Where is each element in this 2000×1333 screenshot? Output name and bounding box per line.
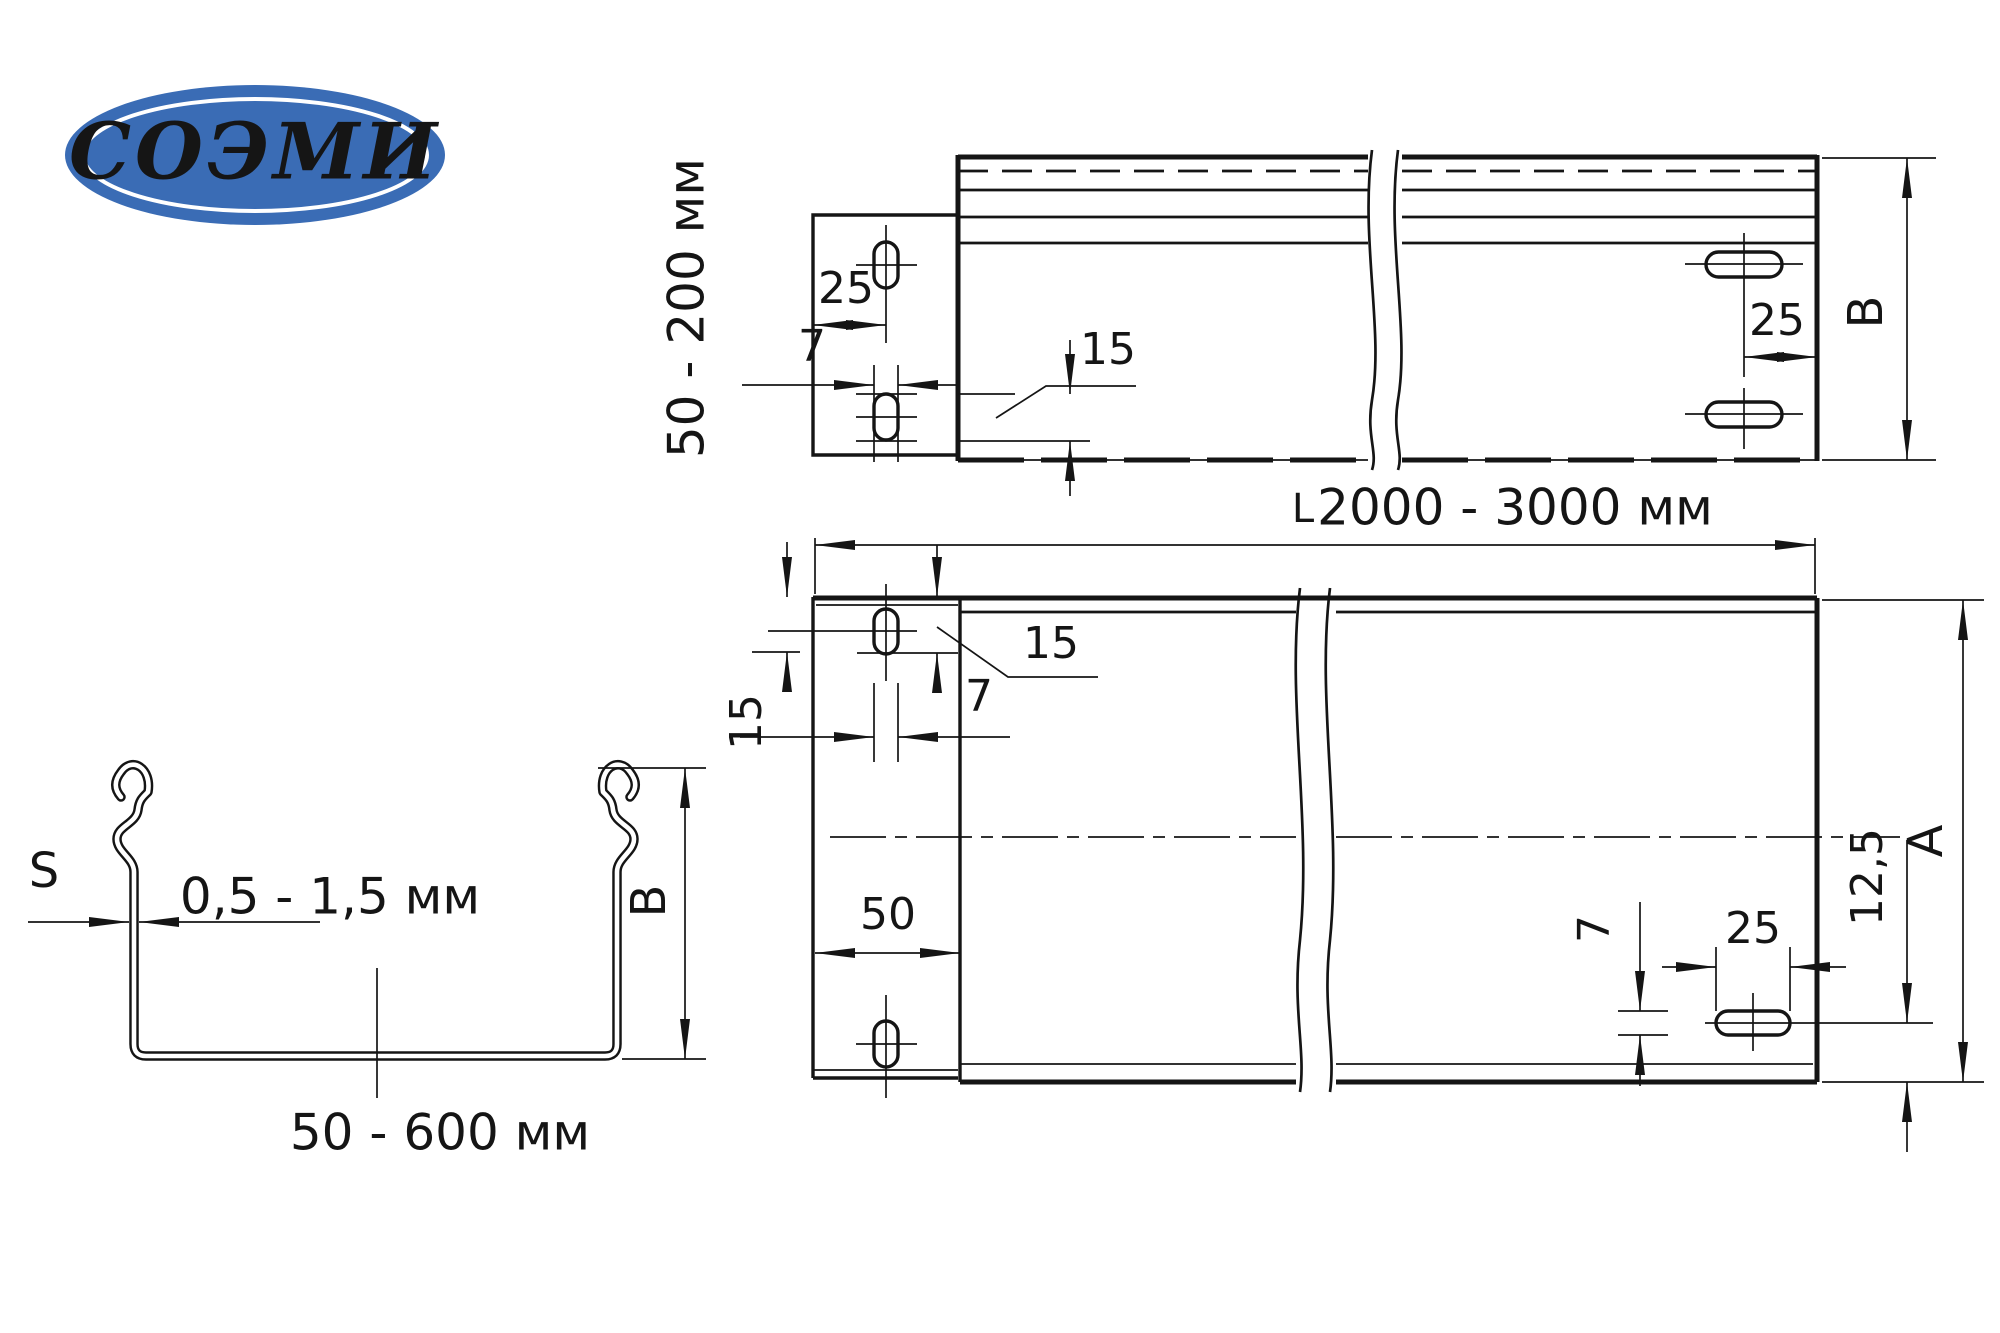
dim-length-symbol: L: [1292, 486, 1315, 532]
dim-width-A: A: [1898, 824, 1954, 857]
dim-edge-to-slot: 15: [721, 694, 772, 750]
length-dimension: L 2000 - 3000 мм: [815, 479, 1815, 595]
break-line: [1326, 588, 1334, 1092]
dim-hole-offset-right: 25: [1749, 295, 1805, 346]
dim-slot-width: 7: [798, 321, 826, 372]
dim-hole-offset-left: 25: [818, 263, 874, 314]
dim-center-offset: 12,5: [1842, 828, 1893, 926]
side-view-height-range-label: 50 - 200 мм: [658, 158, 716, 458]
cable-tray-drawing: СОЭМИ 50 - 200 мм: [0, 0, 2000, 1333]
dim-hole-offset: 25: [1725, 903, 1781, 954]
thickness-range-label: 0,5 - 1,5 мм: [180, 868, 480, 926]
thickness-symbol: S: [29, 843, 59, 899]
break-line: [1395, 150, 1402, 470]
side-view: 50 - 200 мм 25: [658, 150, 1937, 496]
dim-length-range: 2000 - 3000 мм: [1317, 479, 1713, 537]
dim-tab-width: 50: [860, 889, 916, 940]
dim-height-B: B: [621, 885, 677, 918]
break-line: [1369, 150, 1376, 470]
dim-slot-width-right: 7: [1569, 915, 1620, 943]
width-range-label: 50 - 600 мм: [290, 1104, 590, 1162]
dim-height-B: B: [1838, 296, 1894, 329]
dim-slot-width-left: 7: [965, 671, 993, 722]
dim-slot-length: 15: [1080, 324, 1136, 375]
plan-view: 15 15 7 50 25 7 12: [721, 542, 1984, 1152]
leader-line: [996, 386, 1136, 418]
cross-section-view: S 0,5 - 1,5 мм B 50 - 600 мм: [28, 765, 706, 1162]
logo: СОЭМИ: [65, 85, 445, 225]
logo-text: СОЭМИ: [69, 107, 441, 198]
dim-slot-length: 15: [1023, 618, 1079, 669]
technical-drawing-page: СОЭМИ 50 - 200 мм: [0, 0, 2000, 1333]
break-line: [1296, 588, 1304, 1092]
